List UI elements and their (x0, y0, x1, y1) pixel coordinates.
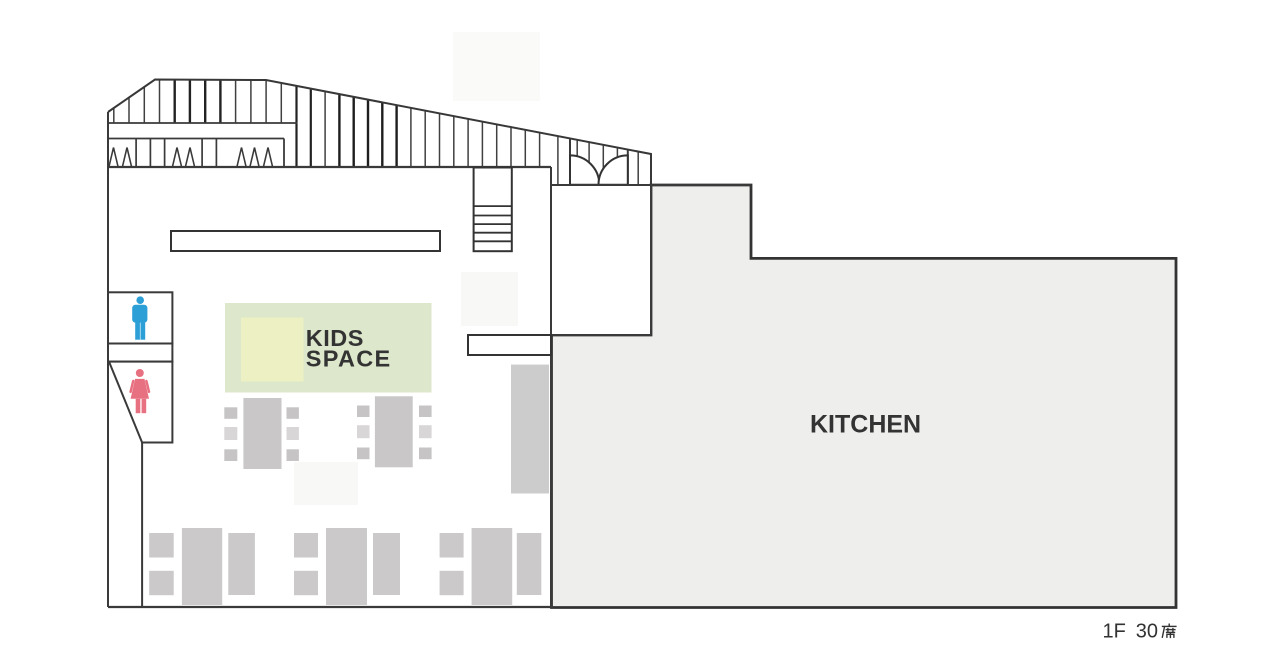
svg-text:30: 30 (1136, 621, 1158, 643)
svg-text:1F: 1F (1103, 621, 1126, 643)
svg-text:KITCHEN: KITCHEN (810, 410, 921, 438)
svg-text:SPACE: SPACE (306, 345, 392, 371)
